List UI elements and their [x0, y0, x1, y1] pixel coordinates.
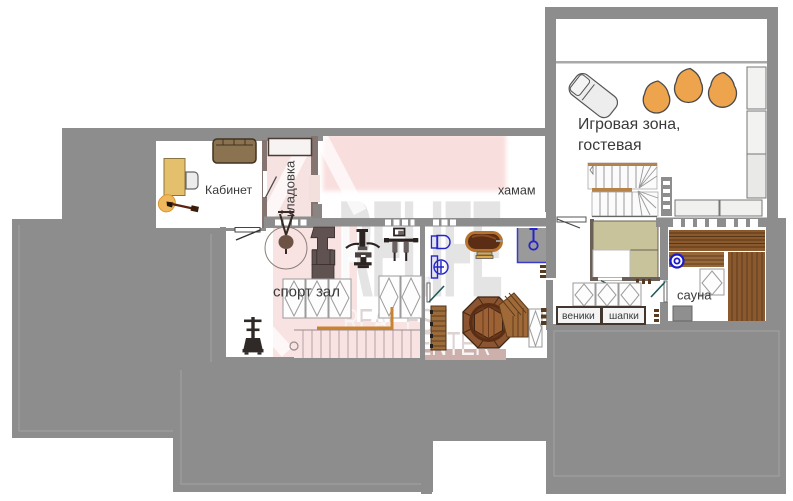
svg-text:спорт зал: спорт зал [273, 284, 340, 301]
svg-text:Игровая зона,: Игровая зона, [578, 116, 680, 133]
svg-text:гостевая: гостевая [578, 137, 642, 154]
svg-text:сауна: сауна [677, 288, 712, 303]
svg-text:кладовка: кладовка [283, 160, 298, 217]
svg-text:веники: веники [562, 311, 595, 322]
svg-text:хамам: хамам [498, 184, 535, 198]
svg-text:шапки: шапки [609, 311, 639, 322]
svg-text:Кабинет: Кабинет [205, 183, 252, 197]
